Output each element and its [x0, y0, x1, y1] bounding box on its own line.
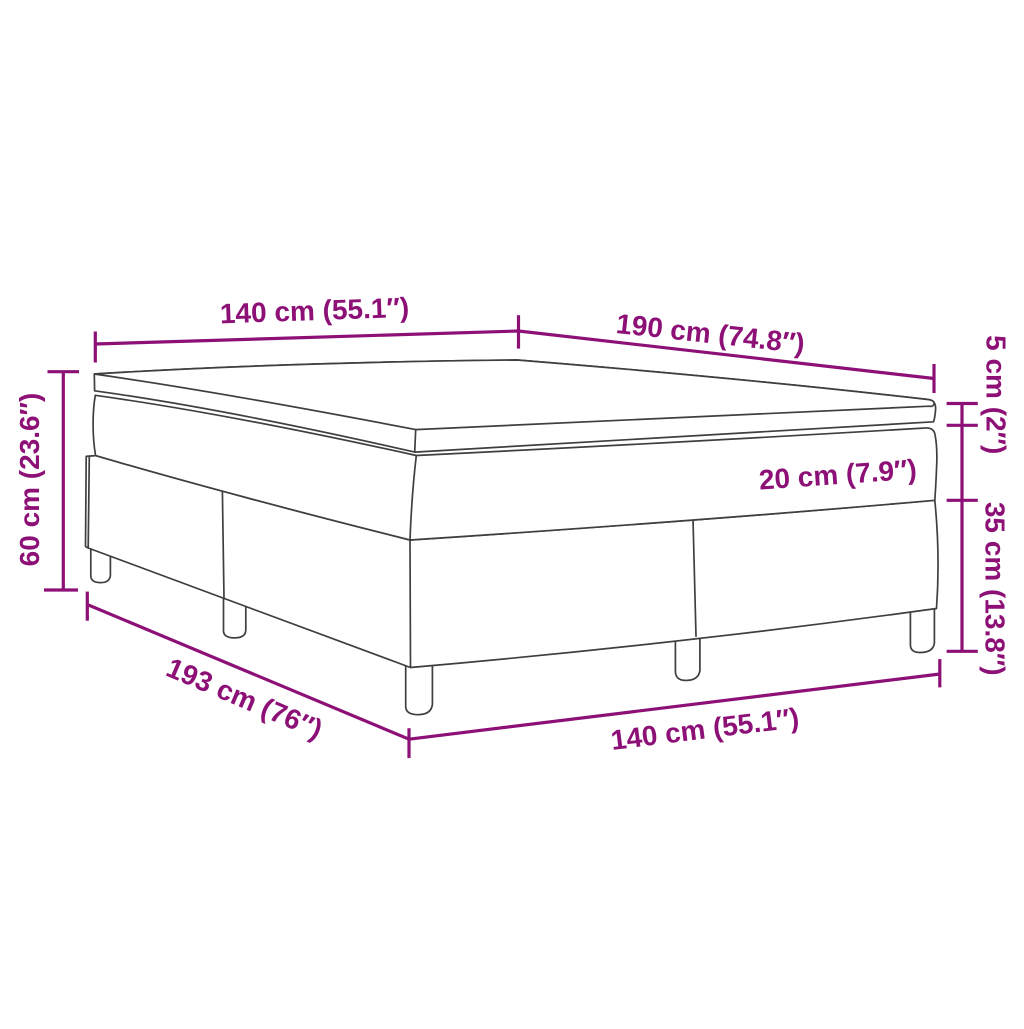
svg-text:140 cm (55.1″): 140 cm (55.1″): [219, 292, 409, 330]
svg-text:35 cm (13.8″): 35 cm (13.8″): [980, 502, 1011, 676]
svg-text:60 cm (23.6″): 60 cm (23.6″): [14, 393, 45, 567]
svg-text:5 cm (2″): 5 cm (2″): [981, 335, 1012, 454]
